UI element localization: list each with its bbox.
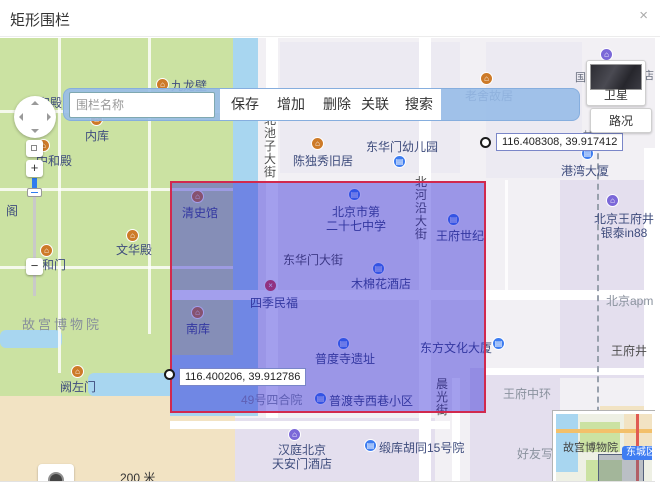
poi-label-gangwan: 港湾大厦: [561, 164, 609, 178]
traffic-layer-toggle[interactable]: 路况: [590, 108, 652, 133]
area-label-wfzhonghuan: 王府中环: [503, 385, 551, 402]
fence-corner-marker-topright[interactable]: [480, 137, 491, 148]
kindergarten-poi-icon: [393, 155, 406, 168]
poi-label-intime88: 北京王府井 银泰in88: [593, 212, 655, 240]
zoom-out-button[interactable]: −: [26, 258, 43, 275]
reset-view-button[interactable]: [26, 140, 43, 157]
poi-label-kindergarten: 东华门幼儿园: [366, 140, 438, 154]
area-label-bjapm: 北京apm: [606, 292, 653, 309]
poi-label-duanku15: 缎库胡同15号院: [379, 441, 464, 455]
locate-button[interactable]: [38, 464, 74, 482]
poi-label-wenhuadian: 文华殿: [116, 243, 152, 257]
residence-poi-icon: [364, 439, 377, 452]
locate-icon: [48, 472, 64, 482]
modal-header: 矩形围栏 ×: [0, 0, 660, 37]
building-poi-icon: [492, 337, 505, 350]
palace-path-v2: [148, 38, 151, 334]
pan-down-icon[interactable]: [31, 129, 39, 133]
scenic-poi-icon: [40, 244, 53, 257]
toolbar-button-strip: 保存 增加 删除 关联 搜索: [220, 89, 441, 120]
poi-label-ge: 阁: [6, 204, 18, 218]
street-east-lane: [486, 368, 655, 375]
scenic-poi-icon: [480, 72, 493, 85]
scenic-poi-icon: [126, 229, 139, 242]
minimap-orange-road: [556, 429, 655, 433]
mall-poi-icon: [606, 194, 619, 207]
fence-coord-label-bottomleft: 116.400206, 39.912786: [179, 368, 306, 386]
fence-name-input[interactable]: [69, 92, 215, 118]
area-label-haoyou: 好友写: [517, 445, 553, 462]
save-button[interactable]: 保存: [224, 89, 266, 120]
poi-label-neiku: 内库: [85, 129, 109, 143]
district-boundary-line: [597, 133, 599, 433]
vstreet-label-beichizi: 北池子大街: [264, 114, 277, 179]
satellite-label: 卫星: [587, 86, 645, 103]
pan-left-icon[interactable]: [19, 113, 23, 121]
scale-text: 200 米: [120, 469, 155, 482]
fence-corner-marker-bottomleft[interactable]: [164, 369, 175, 380]
minimap-district-badge: 东城区: [622, 446, 655, 460]
modal-title: 矩形围栏: [10, 9, 70, 30]
poi-label-quezuomen: 阙左门: [60, 380, 96, 394]
traffic-label: 路况: [609, 114, 633, 128]
street-nanchizi-lane: [170, 421, 450, 429]
map-canvas[interactable]: 九龙壁 内库 保和殿 中和殿 阁 太和门 文华殿 清史馆 故宫博物院 阙左门 南…: [0, 38, 655, 482]
zoom-slider-handle[interactable]: [27, 188, 42, 197]
reset-view-icon: [31, 145, 37, 151]
add-button[interactable]: 增加: [270, 89, 312, 120]
rect-fence-modal: 矩形围栏 × 九龙壁: [0, 0, 660, 494]
pan-up-icon[interactable]: [31, 101, 39, 105]
link-button[interactable]: 关联: [354, 89, 396, 120]
scenic-poi-icon: [311, 137, 324, 150]
east-path-v: [505, 180, 508, 292]
overview-minimap[interactable]: 故宫博物院 东城区 市人民政府 ★ ↘: [553, 411, 655, 482]
delete-button[interactable]: 删除: [316, 89, 358, 120]
fence-toolbar: 保存 增加 删除 关联 搜索: [63, 88, 580, 121]
pan-compass-control[interactable]: [14, 96, 56, 138]
minimap-area-label: 故宫博物院: [563, 439, 618, 455]
close-icon[interactable]: ×: [639, 7, 648, 24]
zoom-in-button[interactable]: +: [26, 160, 43, 177]
fence-coord-label-topright: 116.408308, 39.917412: [496, 133, 623, 151]
satellite-layer-toggle[interactable]: 卫星: [586, 60, 646, 106]
street-label-wangfujing: 王府井: [611, 342, 647, 359]
area-label-palace-museum: 故宫博物院: [22, 314, 102, 333]
label-fragment-guo: 国: [575, 69, 586, 85]
poi-label-hanting: 汉庭北京 天安门酒店: [266, 443, 338, 471]
search-button[interactable]: 搜索: [398, 89, 440, 120]
poi-label-chenduxiu: 陈独秀旧居: [293, 154, 353, 168]
pan-right-icon[interactable]: [47, 113, 51, 121]
scenic-poi-icon: [71, 365, 84, 378]
hotel-poi-icon: [288, 428, 301, 441]
